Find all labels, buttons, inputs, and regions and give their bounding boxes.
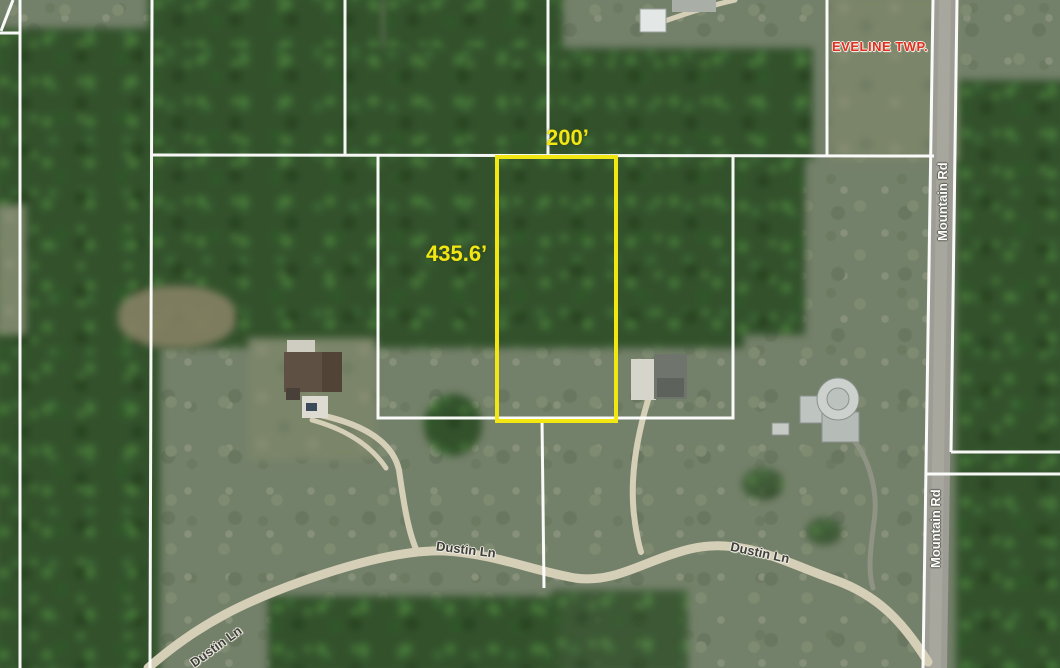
map-overlay	[0, 0, 1060, 668]
driveway-house-1-loop	[312, 420, 386, 468]
driveway-house-1	[310, 413, 416, 549]
dustin-lane-road	[148, 0, 928, 668]
parcel-depth-label: 435.6’	[426, 243, 487, 265]
highlighted-parcel-outline	[497, 157, 616, 421]
driveway-castle	[846, 432, 875, 588]
aerial-map: 200’ 435.6’ EVELINE TWP. Dustin Ln Dusti…	[0, 0, 1060, 668]
house-gray	[631, 354, 687, 400]
road-label-mountain-rd-1: Mountain Rd	[936, 162, 949, 241]
castle-building	[772, 378, 859, 442]
road-label-mountain-rd-2: Mountain Rd	[929, 489, 942, 568]
driveway-house-2	[633, 400, 648, 552]
house-brown	[284, 340, 342, 418]
township-label: EVELINE TWP.	[832, 40, 928, 53]
parcel-frontage-label: 200’	[546, 127, 589, 149]
